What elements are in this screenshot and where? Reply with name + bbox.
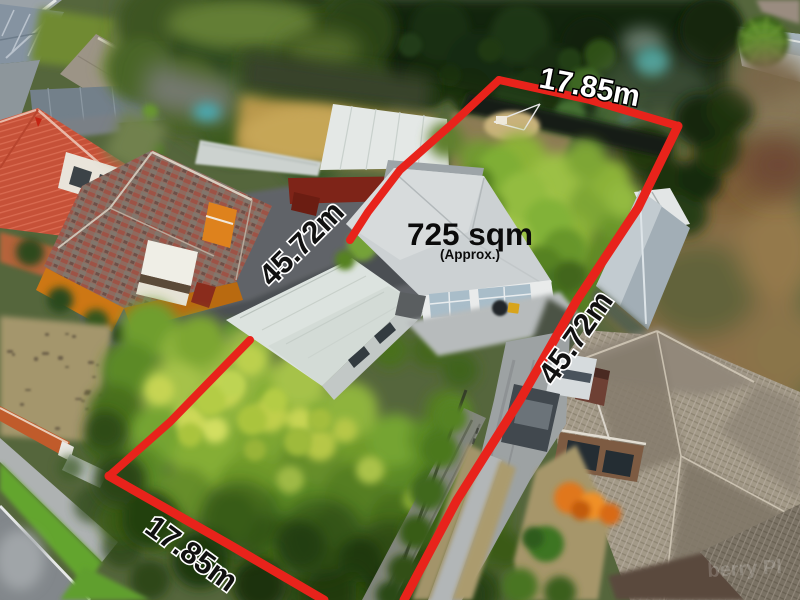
svg-text:(Approx.): (Approx.) <box>440 247 500 262</box>
svg-text:berry Pl: berry Pl <box>707 556 783 582</box>
